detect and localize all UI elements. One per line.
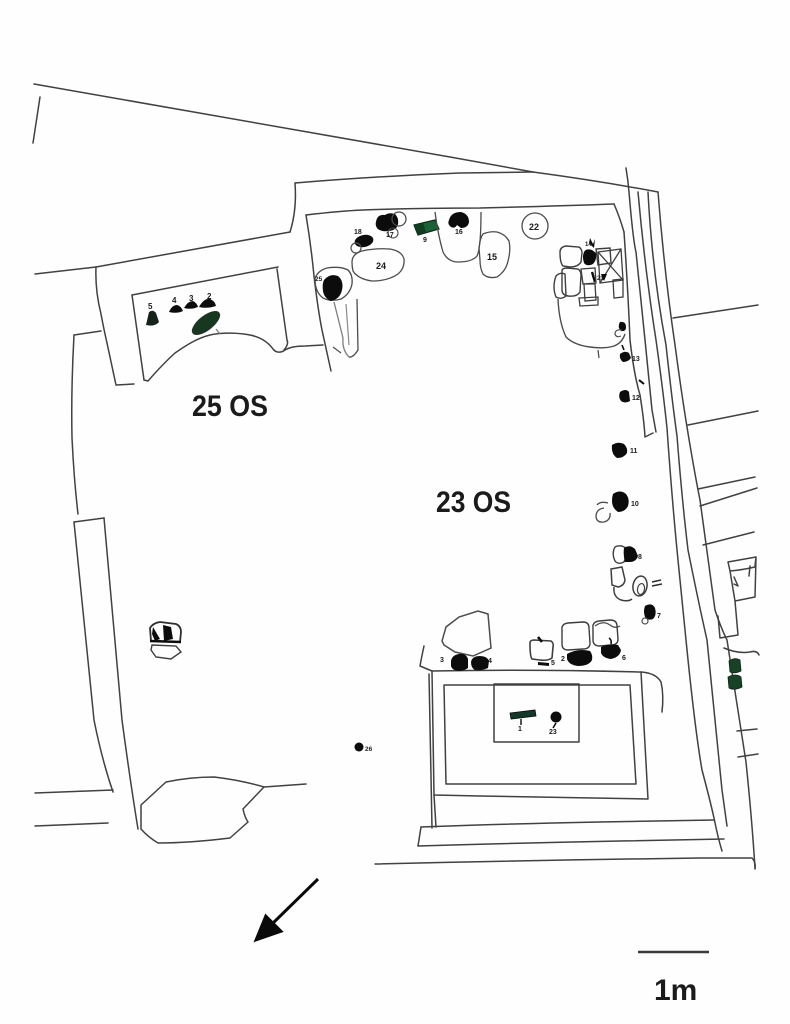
svg-text:1m: 1m	[654, 974, 697, 1007]
svg-text:16: 16	[455, 229, 463, 236]
svg-text:11: 11	[630, 448, 638, 455]
svg-text:7: 7	[657, 613, 661, 620]
svg-text:26: 26	[365, 746, 373, 753]
svg-text:5: 5	[551, 660, 555, 667]
svg-text:25: 25	[315, 276, 323, 283]
svg-text:6: 6	[622, 655, 626, 662]
svg-text:22: 22	[529, 222, 539, 232]
svg-text:23 OS: 23 OS	[436, 486, 511, 519]
svg-text:1: 1	[518, 726, 522, 733]
svg-text:18: 18	[354, 229, 362, 236]
svg-text:4: 4	[488, 658, 492, 665]
svg-text:14: 14	[585, 242, 592, 248]
svg-text:15: 15	[487, 252, 497, 262]
svg-text:23: 23	[549, 729, 557, 736]
svg-text:3: 3	[440, 657, 444, 664]
svg-text:24: 24	[376, 261, 386, 271]
svg-text:10: 10	[631, 501, 639, 508]
svg-text:17: 17	[386, 232, 394, 239]
svg-text:25 OS: 25 OS	[192, 390, 268, 423]
svg-text:4: 4	[172, 296, 177, 305]
svg-text:5: 5	[148, 302, 153, 311]
svg-text:8: 8	[638, 554, 642, 561]
svg-text:9: 9	[423, 237, 427, 244]
svg-text:13: 13	[632, 356, 640, 363]
svg-text:2: 2	[561, 656, 565, 663]
svg-text:12: 12	[632, 395, 640, 402]
